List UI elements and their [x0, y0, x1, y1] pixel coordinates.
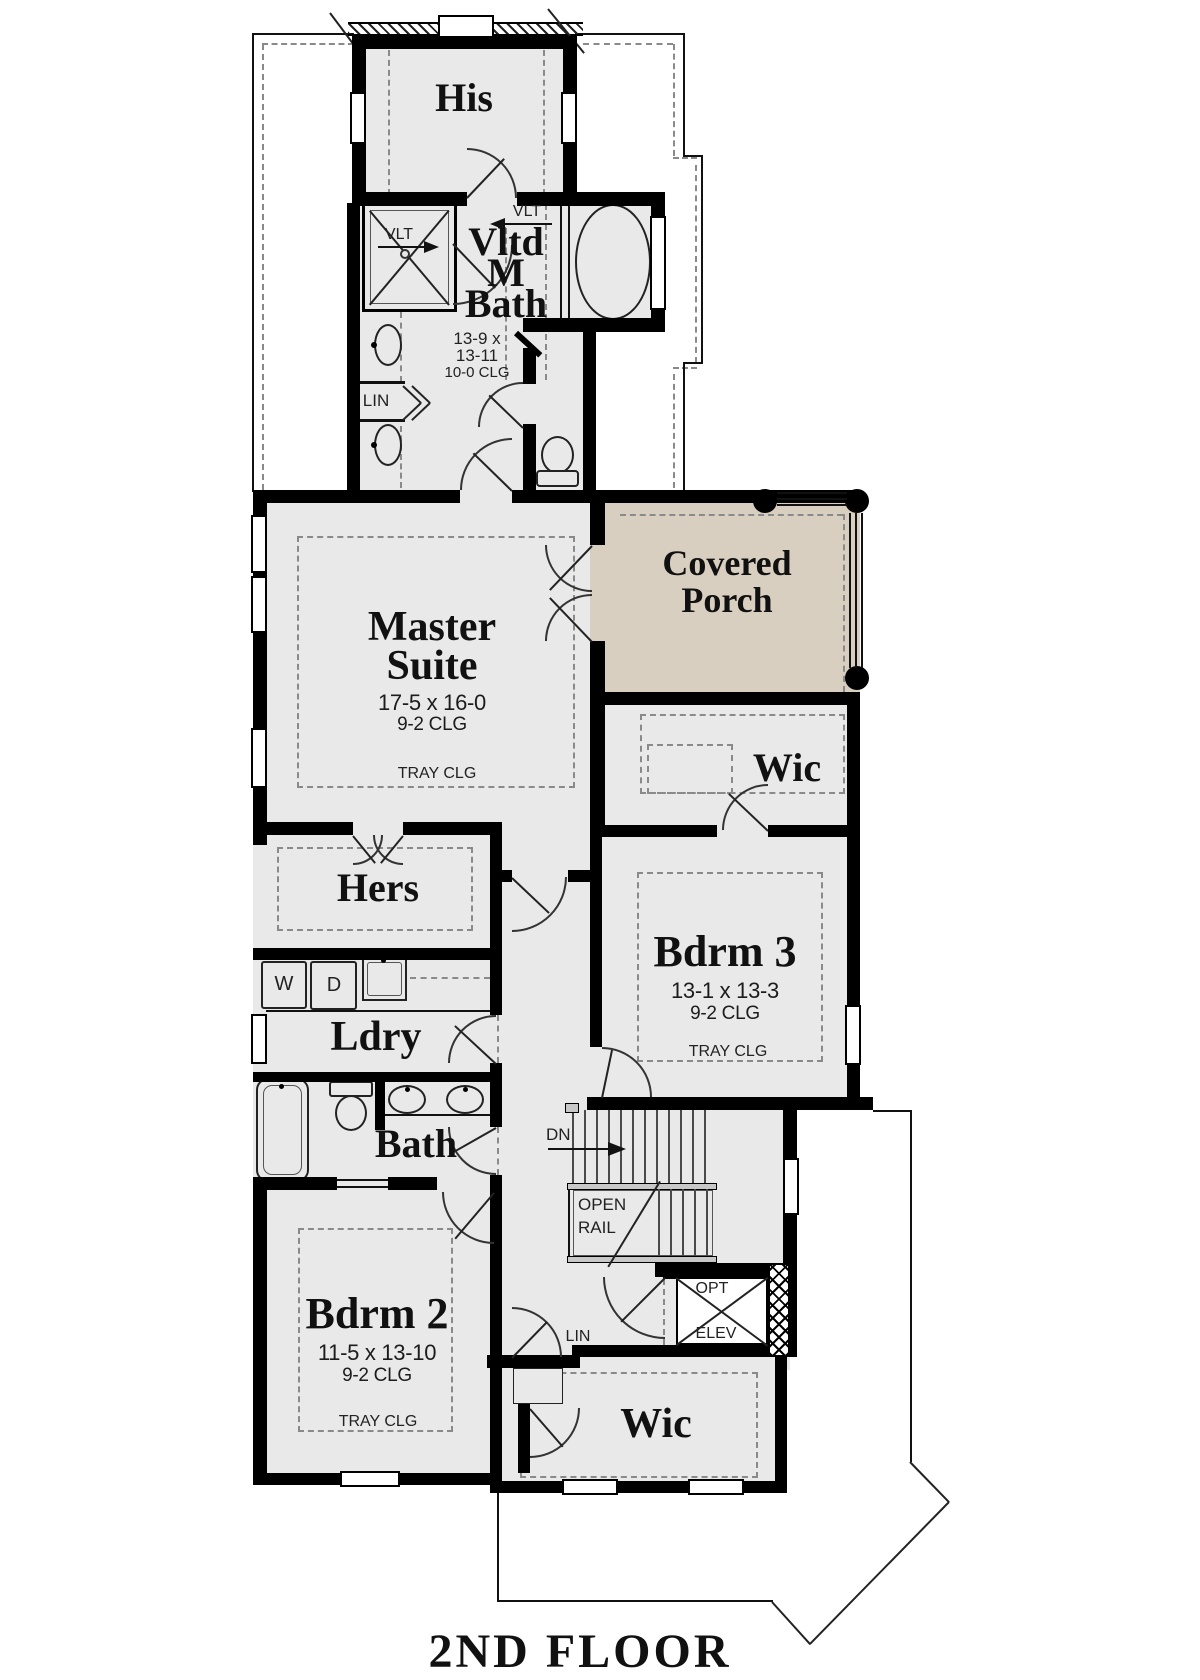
roof-outline: [683, 155, 703, 157]
window: [650, 216, 666, 310]
open-rail-edge: [568, 1189, 570, 1259]
roof-outline: [683, 33, 685, 157]
wall: [253, 822, 353, 835]
laundry-sink-icon: [367, 962, 402, 996]
dryer-label: D: [327, 975, 341, 995]
room-label-hers: Hers: [337, 868, 419, 908]
wall: [572, 1345, 768, 1357]
roof-outline: [683, 362, 685, 492]
railing: [777, 504, 847, 506]
room-label-his: His: [435, 78, 493, 118]
lower-floor-outline: [873, 1110, 912, 1112]
railing: [855, 513, 857, 668]
window: [561, 92, 577, 144]
railing: [861, 513, 863, 668]
tray-label-bedroom3: TRAY CLG: [689, 1044, 768, 1060]
stair-treads: [658, 1189, 713, 1263]
dashed-line: [673, 157, 697, 159]
window: [845, 1005, 861, 1065]
dashed-line: [673, 374, 675, 488]
porch-column-icon: [753, 489, 777, 513]
elevator-elev-label: ELEV: [696, 1326, 737, 1342]
wall: [768, 825, 860, 837]
elevator-opt-label: OPT: [696, 1281, 729, 1297]
wall: [490, 822, 502, 884]
toilet-icon: [541, 436, 574, 474]
dashed-line: [673, 367, 697, 369]
toilet-tank-icon: [536, 470, 579, 487]
tray-label-bedroom2: TRAY CLG: [339, 1414, 418, 1430]
window: [340, 1471, 400, 1487]
wall: [253, 948, 502, 960]
lower-floor-outline: [771, 1601, 811, 1645]
dashed-line: [583, 43, 673, 45]
wall: [590, 490, 605, 545]
sink-icon: [374, 324, 402, 366]
stair-treads: [572, 1110, 713, 1183]
tub-deck-line: [568, 205, 570, 318]
window: [783, 1158, 799, 1215]
washer-label: W: [275, 974, 294, 994]
lin-recess: [513, 1368, 563, 1404]
roof-outline: [575, 33, 685, 35]
roof-outline: [701, 155, 703, 364]
dashed-line: [620, 514, 843, 516]
window: [350, 92, 366, 144]
tray-label-master: TRAY CLG: [398, 766, 477, 782]
roof-outline: [252, 33, 254, 492]
window: [562, 1479, 618, 1495]
window: [251, 576, 267, 633]
faucet-icon: [371, 442, 377, 448]
dim-label-master-bath: 13-9 x 13-11: [453, 330, 500, 364]
dashed-line: [262, 43, 354, 45]
floor-plan: His Vltd M Bath 13-9 x 13-11 10-0 CLG VL…: [0, 0, 1200, 1680]
wall: [523, 348, 536, 384]
faucet-icon: [371, 342, 377, 348]
room-label-bedroom3: Bdrm 3 13-1 x 13-3 9-2 CLG: [654, 930, 797, 1023]
lower-floor-outline: [909, 1461, 949, 1503]
closet-shelf-outline: [647, 744, 733, 794]
dashed-line: [543, 50, 545, 195]
dashed-line: [497, 1015, 499, 1063]
dashed-line: [262, 44, 264, 490]
bathtub-icon: [575, 204, 651, 320]
window: [251, 515, 267, 573]
wall: [568, 870, 602, 882]
ceiling-label-master-bath: 10-0 CLG: [444, 365, 509, 380]
dashed-line: [695, 165, 697, 363]
wall: [352, 36, 577, 49]
vlt-arrow-head: [424, 241, 439, 253]
wall: [253, 490, 460, 503]
counter-line: [266, 1010, 490, 1012]
wall: [847, 837, 860, 1110]
lower-floor-outline: [497, 1600, 773, 1602]
faucet-icon: [279, 1084, 284, 1089]
wall: [775, 1357, 787, 1493]
wall: [651, 192, 665, 218]
dashed-line: [673, 44, 675, 156]
faucet-icon: [405, 1087, 410, 1092]
wall: [523, 424, 536, 490]
room-label-wic-bedroom2: Wic: [620, 1403, 692, 1445]
wall: [253, 1180, 267, 1485]
vlt-label-bath: VLT: [513, 204, 541, 220]
roof-outline: [683, 362, 703, 364]
wall: [587, 1097, 873, 1110]
dashed-line: [388, 50, 390, 195]
bathtub-icon: [263, 1085, 302, 1175]
room-label-laundry: Ldry: [330, 1016, 421, 1058]
dashed-line: [410, 977, 490, 979]
wall: [663, 1263, 676, 1279]
stair-rail: [567, 1256, 717, 1263]
railing: [777, 498, 847, 500]
newel-post: [565, 1103, 579, 1113]
dn-arrow: [548, 1148, 610, 1150]
porch-column-icon: [845, 489, 869, 513]
linen-label-hall: LIN: [566, 1329, 591, 1345]
room-label-master-suite: Master Suite 17-5 x 16-0 9-2 CLG: [368, 608, 496, 734]
page-title: 2ND FLOOR: [429, 1628, 732, 1676]
lower-floor-outline: [497, 1485, 499, 1602]
wall: [590, 692, 860, 705]
open-rail-label: OPEN RAIL: [578, 1194, 626, 1240]
wall: [347, 203, 360, 490]
linen-label-master-bath: LIN: [363, 392, 389, 409]
wall-thin: [337, 1186, 388, 1188]
lower-floor-outline: [910, 1110, 912, 1462]
dn-label: DN: [546, 1124, 571, 1147]
window: [251, 728, 267, 788]
room-label-bedroom2: Bdrm 2 11-5 x 13-10 9-2 CLG: [306, 1292, 449, 1385]
room-label-covered-porch: Covered Porch: [662, 545, 791, 618]
wall-thin: [337, 1179, 388, 1181]
wall: [583, 332, 596, 490]
counter-line: [385, 1114, 490, 1116]
toilet-icon: [335, 1095, 367, 1131]
shower-drain-icon: [400, 249, 410, 259]
window: [688, 1479, 744, 1495]
dn-arrow-head: [608, 1142, 626, 1156]
wall: [590, 641, 605, 835]
wall: [518, 1402, 530, 1473]
dashed-line: [843, 514, 845, 692]
wall: [502, 870, 512, 882]
window: [251, 1014, 267, 1064]
wall: [253, 1072, 502, 1082]
sink-icon: [374, 424, 402, 466]
wall: [490, 884, 502, 1015]
room-label-master-bath: Vltd M Bath: [465, 226, 547, 320]
railing: [777, 492, 847, 494]
hatch-wall: [768, 1263, 790, 1357]
porch-column-icon: [845, 666, 869, 690]
vlt-arrow: [378, 246, 424, 248]
wall: [847, 692, 860, 837]
railing: [849, 513, 851, 668]
wall: [403, 822, 502, 835]
room-label-wic-master: Wic: [753, 748, 821, 788]
dashed-line: [497, 1127, 499, 1175]
tub-deck-line: [560, 205, 562, 318]
wall: [590, 825, 602, 1047]
wall: [388, 1177, 437, 1190]
wall: [590, 825, 717, 837]
roof-outline: [252, 33, 354, 35]
faucet-icon: [463, 1087, 468, 1092]
vlt-label-shower: VLT: [385, 227, 413, 243]
lower-floor-outline: [809, 1501, 950, 1645]
wall: [352, 192, 467, 206]
room-label-bath: Bath: [375, 1124, 457, 1164]
